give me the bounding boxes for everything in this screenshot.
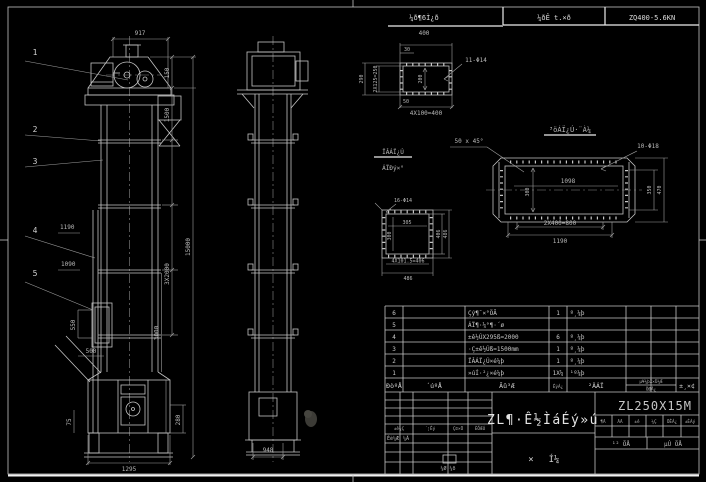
bom-header-no: ÐòºÅ	[386, 381, 402, 390]
drawing-code: ZL250X15M	[618, 399, 692, 413]
cad-drawing-sheet: ¼ð¶6Ì¿ð 400 ¼ðÊ t.×ð ZQ400-5.6KN	[0, 0, 706, 482]
sheet-frame	[0, 0, 706, 482]
attr-header-1: ¶Ã	[600, 418, 606, 425]
sheet-number-label: µÚ ÕÅ	[664, 441, 682, 448]
bom-row-qty: 1	[556, 346, 560, 353]
side-view	[237, 36, 308, 462]
dim-flange-30: 30	[404, 47, 410, 53]
header-field-1: ¼ðÊ t.×ð	[537, 13, 571, 22]
attr-header-4: ¼Ç	[651, 419, 657, 425]
front-view	[55, 36, 181, 462]
dim-flange-rows: 2X125=250	[373, 65, 379, 92]
bom-row-name: ·Ç±ê½Úß=1500mm	[468, 346, 519, 353]
bom-row-qty: 1X¼	[553, 370, 564, 377]
rev-header-1: ±ê¼Ç	[394, 425, 405, 432]
balloon-5: 5	[33, 269, 38, 278]
sign-label-1: Éè¼Æ	[387, 434, 399, 442]
screen-artifacts	[304, 410, 317, 427]
bom-row-no: 1	[392, 370, 396, 377]
scale-value: 400	[419, 30, 430, 37]
dim-front-150: 150	[164, 67, 171, 78]
dim-outlet-spacing: 2X400=800	[544, 220, 577, 227]
dim-flange-spacing: 4X100=400	[410, 110, 443, 117]
dim-front-top-width: 917	[135, 30, 146, 37]
header-field-2: ZQ400-5.6KN	[629, 14, 675, 22]
rev-header-2: ´¦Êý	[425, 424, 436, 432]
dim-side-base: 948	[263, 447, 274, 454]
attr-header-3: ±ê	[634, 418, 640, 425]
sign-label-2: ¼Ã	[403, 435, 409, 442]
dim-front-3000: 3000	[154, 325, 161, 340]
dim-outlet-right-inner: 350	[647, 185, 653, 194]
bom-row-material: ¹º¼þ	[570, 370, 585, 377]
sheet-total-label: ¹² ÕÅ	[612, 441, 630, 448]
bom-row-name: »úÍ·²¿×é¼þ	[468, 369, 505, 377]
rev-header-3: Ç©×Ö	[453, 425, 464, 432]
balloon-1: 1	[33, 48, 38, 57]
dim-outlet-right-outer: 470	[657, 185, 663, 194]
bom-row-no: 4	[392, 334, 396, 341]
dim-front-550: 550	[70, 319, 77, 330]
inlet-holes-note: 16-Φ14	[394, 198, 412, 204]
balloon-2: 2	[33, 125, 38, 134]
outlet-title: ³öÁÏ¿Ú·¨À¼	[549, 125, 591, 134]
dim-inlet-inner-w: 305	[402, 220, 411, 226]
bom-header-code: ´úºÅ	[426, 381, 442, 390]
dim-flange-200: 200	[418, 74, 424, 83]
dim-front-base: 1295	[122, 466, 137, 473]
dim-front-1090: 1090	[61, 261, 76, 268]
bom-header-weight: µ¥¼þX×Ü¼Æ	[639, 378, 663, 385]
bom-row-no: 5	[392, 322, 396, 329]
outlet-holes-note: 10-Φ18	[637, 143, 659, 150]
bom-row-name: Çý¶¯×°ÖÃ	[468, 310, 497, 317]
flange-holes-note: 11-Φ14	[465, 57, 487, 64]
outlet-chamfer-note: 50 x 45°	[455, 138, 484, 145]
bom-row-no: 2	[392, 358, 396, 365]
dim-outlet-outer: 1190	[553, 238, 568, 245]
inlet-title-line1: ÏÂÁÏ¿Ú	[382, 149, 404, 156]
drawing-subtitle-1: ×	[528, 455, 533, 465]
dim-front-overall: 15000	[185, 238, 192, 256]
inlet-title-line2: ÁÏÐý×°	[382, 165, 404, 172]
dim-front-sections: 3X2000	[164, 263, 171, 285]
bom-header-name: Ãû³Æ	[499, 381, 515, 390]
bom-header-weight2: ÖØÁ¿	[646, 386, 657, 393]
dim-flange-50: 50	[403, 99, 409, 105]
bom-row-name: ÏÂÁÏ¿Ú×é¼þ	[468, 358, 505, 365]
bom-row-name: ÁÏ¶·¼°¶·´ø	[468, 322, 505, 329]
approve-label: ¼Ø ¼ð	[440, 465, 455, 472]
dim-flange-290: 290	[359, 74, 365, 83]
bom-row-material: º¸¼þ	[570, 334, 585, 341]
balloon-3: 3	[33, 157, 38, 166]
scale-label: ¼ð¶6Ì¿ð	[409, 13, 439, 22]
dim-outlet-depth: 300	[525, 187, 531, 196]
bom-row-material: º¸¼þ	[570, 358, 585, 365]
drawing-subtitle-2: Í¼	[549, 453, 560, 465]
drawing-canvas: ¼ð¶6Ì¿ð 400 ¼ðÊ t.×ð ZQ400-5.6KN	[0, 0, 706, 482]
bom-row-name: ±ê½ÚX295ß=2000	[468, 334, 519, 341]
bom-row-qty: 1	[556, 358, 560, 365]
dim-inlet-right-outer: 486	[443, 229, 449, 238]
dim-inlet-outer: 486	[403, 276, 412, 282]
bom-row-material: º¸¼þ	[570, 346, 585, 353]
bom-row-no: 3	[392, 346, 396, 353]
dim-front-1190: 1190	[60, 224, 75, 231]
bom-row-material: º¸¼þ	[570, 310, 585, 317]
dim-inlet-right-inner: 406	[436, 229, 442, 238]
smudge-blob-2	[304, 410, 312, 418]
drawing-title: ZL¶·Ê½ÌáÉý»ú	[487, 412, 599, 428]
bom-row-qty: 6	[556, 334, 560, 341]
bom-header-qty: ÊýÁ¿	[553, 382, 564, 390]
dim-front-1500: 1500	[164, 107, 171, 122]
attr-header-2: ÃÃ	[617, 418, 623, 425]
dim-outlet-inner: 1098	[561, 178, 576, 185]
bom-header-material: ²ÄÁÏ	[588, 381, 604, 390]
bom-row-no: 6	[392, 310, 396, 317]
bom-header-remark: ±¸×¢	[679, 382, 695, 390]
bom-row-qty: 1	[556, 310, 560, 317]
rev-header-4: ÈÕÆÚ	[475, 424, 486, 432]
dim-front-500: 500	[86, 348, 97, 355]
dim-front-75: 75	[66, 418, 73, 426]
balloon-4: 4	[33, 226, 38, 235]
dim-front-280: 280	[175, 414, 182, 425]
dim-inlet-spacing: 4X101.5=406	[391, 259, 424, 265]
dim-inlet-inner-h: 300	[387, 231, 393, 240]
attr-header-6: ±ÈÀý	[685, 417, 696, 425]
attr-header-5: ÖÊÁ¿	[667, 417, 678, 425]
front-view-dims	[58, 37, 196, 465]
